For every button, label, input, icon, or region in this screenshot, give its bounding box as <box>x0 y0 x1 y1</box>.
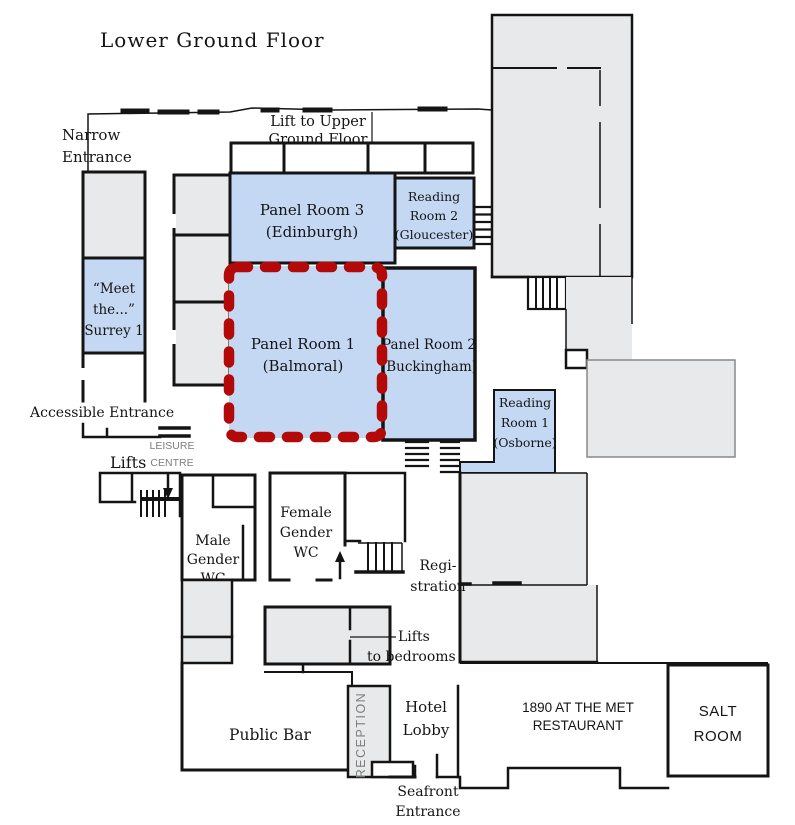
seafront-entrance-label: SeafrontEntrance <box>395 784 460 820</box>
room-gray-upper <box>83 172 145 258</box>
lifts-label: Lifts <box>110 453 146 472</box>
right-wing <box>587 360 735 457</box>
corridor-box <box>566 350 587 368</box>
registration-lower <box>460 585 597 662</box>
public-bar-area: Public Bar <box>182 663 352 770</box>
accessible-entrance-label: Accessible Entrance <box>29 405 174 421</box>
leisure-centre-label: LEISURECENTRE <box>150 440 195 469</box>
public-bar-label: Public Bar <box>229 726 311 744</box>
female-wc-area: FemaleGenderWC <box>270 473 405 580</box>
room-small-1 <box>174 175 230 235</box>
registration-upper <box>460 473 587 585</box>
leisure-entrance-marks <box>160 428 189 436</box>
lifts-to-bedrooms-area: Lifts to bedrooms <box>265 607 456 672</box>
narrow-entrance-wing: NarrowEntrance “Meetthe...”Surrey 1 <box>62 126 145 401</box>
lift-upper-label: Lift to UpperGround Floor <box>269 114 368 148</box>
room-small-3 <box>174 302 230 385</box>
floor-plan: Lower Ground Floor NarrowEntrance “Meett… <box>0 0 795 825</box>
reception-notch <box>372 762 413 777</box>
stairs-reading-2 <box>474 207 492 244</box>
stairs-female-wc <box>368 543 392 571</box>
hotel-lobby-label: HotelLobby <box>403 698 450 739</box>
page-title: Lower Ground Floor <box>100 28 325 52</box>
mid-column-rooms <box>174 175 230 385</box>
corridor-walls <box>83 353 145 401</box>
female-wc-label: FemaleGenderWC <box>280 505 333 561</box>
upper-compartments: Lift to UpperGround Floor <box>231 112 473 173</box>
tower <box>492 15 632 277</box>
registration-area: Regi-stration <box>410 473 597 662</box>
floor-plan-svg: Lower Ground Floor NarrowEntrance “Meett… <box>0 0 795 825</box>
room-small-2 <box>174 235 230 302</box>
surrey-1-label: “Meetthe...”Surrey 1 <box>84 281 143 339</box>
narrow-entrance-label: NarrowEntrance <box>62 126 132 166</box>
room-gray-below-male-wc <box>182 580 232 637</box>
tower-corridor <box>566 277 632 360</box>
reading-1-label: ReadingRoom 1(Osborne) <box>493 395 556 450</box>
lifts-to-bedrooms-label-2: to bedrooms <box>367 649 456 665</box>
accessible-lifts-area: Accessible Entrance LEISURECENTRE Lifts <box>29 405 194 516</box>
stairs-tower-box <box>528 277 566 309</box>
up-arrow-icon <box>335 551 345 578</box>
restaurant-label: 1890 AT THE METRESTAURANT <box>522 700 634 733</box>
room-gray-below-male-wc-2 <box>182 637 232 663</box>
room-panel-2 <box>383 268 475 440</box>
room-salt <box>668 665 768 776</box>
salt-room-area: SALTROOM <box>668 665 768 776</box>
stairs-leisure <box>141 491 165 516</box>
lifts-to-bedrooms-label-1: Lifts <box>398 629 430 645</box>
registration-label: Regi-stration <box>410 558 465 595</box>
stairs-below-panel-2 <box>406 442 459 472</box>
male-wc-area: MaleGenderWC <box>182 475 255 663</box>
reception-label: RECEPTION <box>354 692 368 778</box>
